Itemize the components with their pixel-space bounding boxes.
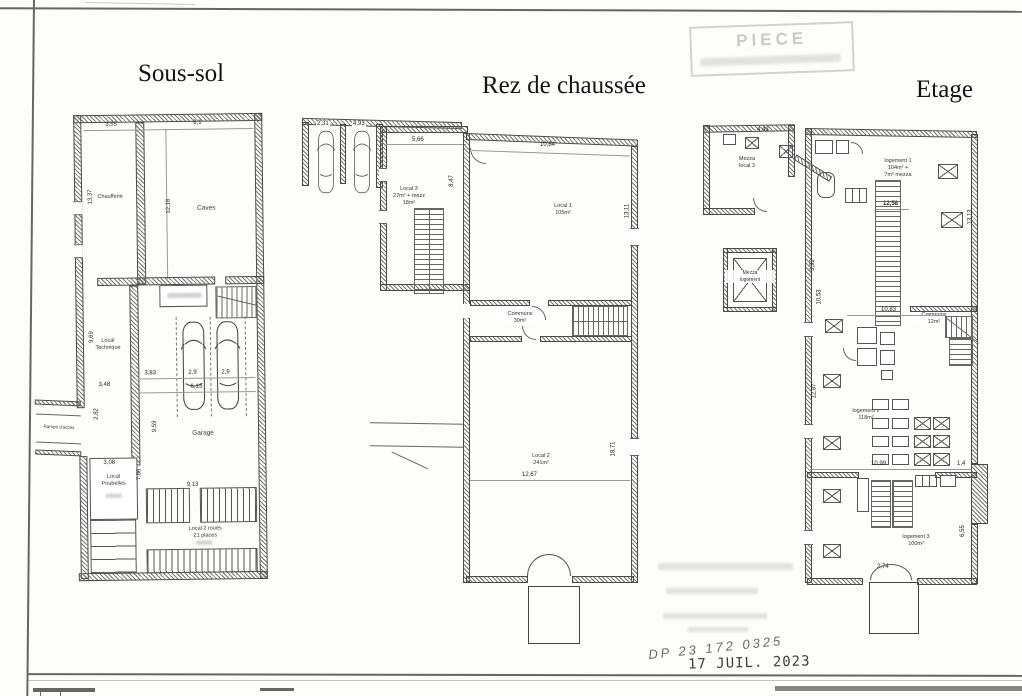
wall bbox=[225, 276, 264, 284]
door-arc bbox=[851, 142, 863, 154]
dim-label: 4,43 bbox=[757, 127, 769, 133]
stairs bbox=[215, 286, 256, 318]
illegible-area-label bbox=[106, 494, 122, 498]
bathtub-icon bbox=[817, 172, 835, 198]
window bbox=[74, 244, 83, 258]
wall bbox=[631, 146, 638, 583]
parking-dashed-line bbox=[245, 316, 247, 416]
wall bbox=[805, 128, 977, 138]
wall bbox=[73, 113, 262, 123]
dim-label: 3,83 bbox=[144, 370, 156, 376]
skylight-icon bbox=[914, 453, 931, 466]
wall bbox=[302, 122, 309, 186]
dimension-line bbox=[83, 128, 253, 131]
dim-label: 6,55 bbox=[960, 525, 966, 537]
dimension-line bbox=[847, 315, 945, 316]
room-label-logement3: logement 3 100m² bbox=[891, 534, 941, 548]
window bbox=[804, 530, 813, 545]
plan-sous-sol: 3,55 8,1 13,37 12,16 Chaufferie Caves Lo… bbox=[65, 104, 286, 589]
fixture bbox=[880, 350, 895, 365]
dim-label: 9,69 bbox=[89, 331, 95, 343]
skylight-icon bbox=[823, 544, 841, 558]
skylight-icon bbox=[914, 435, 931, 448]
stairs bbox=[875, 180, 901, 326]
wall bbox=[380, 126, 468, 133]
page-border-top-shadow bbox=[85, 2, 195, 5]
titleblock-tick bbox=[40, 688, 41, 696]
piece-stamp-text: PIECE bbox=[691, 27, 852, 53]
fixture bbox=[880, 332, 895, 345]
dim-label: 3,55 bbox=[105, 122, 117, 128]
door-arc bbox=[549, 554, 571, 576]
site-line bbox=[370, 445, 463, 448]
piece-stamp-blur-line bbox=[700, 54, 840, 67]
skylight-icon bbox=[914, 417, 931, 430]
room-label-caves: Caves bbox=[181, 204, 231, 213]
fixture bbox=[836, 140, 849, 154]
balcony bbox=[869, 582, 919, 634]
wall bbox=[971, 524, 978, 584]
fixture bbox=[815, 140, 833, 154]
dim-label: 1,4 bbox=[957, 461, 965, 467]
dim-label: 8,47 bbox=[449, 175, 455, 187]
illegible-area-label bbox=[196, 541, 212, 545]
car-icon bbox=[314, 129, 338, 195]
car-icon bbox=[214, 316, 242, 414]
skylight-icon bbox=[825, 319, 843, 333]
dim-label: 8,1 bbox=[193, 120, 201, 126]
wall bbox=[466, 576, 528, 583]
room-label-mezza-logement: Mezza logement bbox=[725, 270, 775, 283]
door-arc bbox=[532, 306, 546, 320]
fixture bbox=[881, 370, 893, 380]
dim-label: 2,31 bbox=[316, 121, 330, 127]
dim-label: 2,9 bbox=[221, 369, 229, 375]
door-arc bbox=[891, 564, 912, 580]
skylight-icon bbox=[941, 212, 963, 228]
stairs bbox=[893, 480, 913, 528]
dim-label: 4,93 bbox=[352, 121, 366, 127]
storage-boxes bbox=[90, 519, 137, 574]
window bbox=[630, 438, 639, 456]
dim-label: 13,13 bbox=[968, 209, 974, 224]
dim-label: 7,86 bbox=[136, 469, 142, 481]
titleblock-edge-right bbox=[775, 686, 1022, 691]
plan-title-etage: Etage bbox=[916, 76, 973, 104]
wall bbox=[723, 248, 777, 253]
window bbox=[73, 201, 82, 215]
car-icon bbox=[350, 129, 374, 195]
wall bbox=[540, 336, 632, 342]
skylight-icon bbox=[933, 435, 950, 448]
wall bbox=[971, 134, 978, 464]
dim-label: 13,11 bbox=[624, 204, 630, 219]
kitchen-block bbox=[845, 188, 867, 203]
room-label-garage: Garage bbox=[181, 429, 225, 438]
plan-title-sous-sol: Sous-sol bbox=[138, 60, 224, 88]
roof-window bbox=[872, 399, 889, 410]
wall bbox=[340, 124, 346, 184]
fixture bbox=[915, 475, 937, 487]
skylight-icon bbox=[823, 489, 841, 503]
room-label-rampe: Rampe d'accès bbox=[37, 424, 81, 432]
page-border-top bbox=[0, 7, 1022, 12]
roof-window bbox=[872, 436, 889, 447]
titleblock-edge-mid bbox=[260, 688, 294, 691]
plan-rez-de-chaussee: 2,31 4,93 5,66 8,47 Local 3 27m² + mezz … bbox=[300, 108, 648, 656]
stairs-guide-line bbox=[572, 321, 628, 322]
car-icon bbox=[180, 317, 208, 415]
room-label-local-2-roues: Local 2 roues 21 places bbox=[170, 525, 240, 540]
dim-label: 10,53 bbox=[817, 289, 823, 304]
wall bbox=[703, 124, 795, 133]
parking-dashed-line bbox=[176, 317, 178, 417]
door-arc bbox=[522, 326, 536, 340]
parking-dashed-line bbox=[210, 317, 212, 417]
door-arc bbox=[527, 554, 549, 576]
door-arc bbox=[870, 564, 891, 580]
stairs-center-wall bbox=[892, 480, 894, 528]
wall bbox=[470, 300, 530, 306]
wall bbox=[35, 450, 81, 457]
wall bbox=[703, 208, 755, 215]
illegible-room-label bbox=[167, 293, 201, 298]
room-local-poubelles bbox=[89, 457, 138, 520]
room-label-local2: Local 2 241m² bbox=[516, 453, 566, 467]
wall bbox=[703, 125, 710, 215]
skylight-icon bbox=[938, 164, 958, 179]
site-line bbox=[392, 452, 429, 470]
entrance-porch bbox=[528, 586, 580, 644]
door-arc bbox=[843, 348, 856, 361]
bike-rack bbox=[146, 488, 190, 524]
fixture bbox=[723, 134, 736, 145]
room-label-local1: Local 1 105m² bbox=[538, 203, 588, 217]
wall bbox=[135, 122, 146, 284]
stairs bbox=[949, 338, 973, 366]
dim-label: 3,48 bbox=[98, 382, 110, 388]
plan-etage: Mezza local 3 4,43 Mezza logement logeme… bbox=[695, 112, 1022, 660]
dim-label: 3,08 bbox=[103, 460, 115, 466]
dim-label: 12,67 bbox=[522, 472, 537, 478]
wall bbox=[35, 400, 81, 407]
room-label-local-poubelles: Local Poubelles bbox=[92, 473, 136, 488]
skylight-icon bbox=[933, 417, 950, 430]
dim-label: 6,13 bbox=[190, 384, 202, 390]
page-border-bottom-2 bbox=[28, 680, 1022, 681]
titleblock-edge-left bbox=[33, 688, 95, 692]
page-border-left bbox=[26, 0, 34, 696]
bike-rack bbox=[146, 548, 257, 573]
wall bbox=[463, 133, 470, 583]
dimension-line bbox=[470, 480, 630, 481]
wall bbox=[807, 578, 863, 585]
dim-label: 9,13 bbox=[186, 482, 200, 488]
wall bbox=[129, 285, 140, 465]
fixture bbox=[857, 478, 869, 512]
dim-label: 10,83 bbox=[881, 307, 896, 313]
skylight-icon bbox=[933, 453, 950, 466]
room-label-logement1: logement 1 104m² + 7m² mezza bbox=[875, 158, 921, 179]
window bbox=[379, 210, 387, 224]
wall bbox=[79, 456, 89, 579]
plan-title-rez: Rez de chaussée bbox=[482, 72, 646, 100]
roof-window bbox=[892, 418, 909, 429]
wall bbox=[807, 472, 859, 478]
door-arc bbox=[470, 148, 486, 164]
wall bbox=[572, 576, 634, 583]
dimension-line bbox=[810, 469, 972, 470]
dim-label: 10,99 bbox=[871, 461, 886, 467]
dim-label: 18,71 bbox=[611, 441, 617, 456]
piece-stamp: PIECE bbox=[689, 21, 855, 77]
ramp-line bbox=[36, 442, 81, 445]
window bbox=[630, 228, 639, 246]
roof-window bbox=[892, 399, 909, 410]
dimension-line bbox=[472, 150, 630, 157]
wall bbox=[73, 115, 85, 408]
dim-label: 12,16 bbox=[166, 199, 172, 214]
page-border-bottom bbox=[28, 673, 1022, 677]
stairs bbox=[871, 480, 891, 528]
dim-label: 2,9 bbox=[188, 370, 196, 376]
room-label-chaufferie: Chaufferie bbox=[88, 194, 132, 202]
skylight-icon bbox=[779, 145, 793, 158]
dim-label: 12,87 bbox=[812, 383, 818, 398]
wall bbox=[470, 336, 522, 342]
skylight-icon bbox=[823, 374, 841, 388]
fixture bbox=[857, 348, 877, 366]
skylight-icon bbox=[823, 436, 841, 450]
skylight-icon bbox=[745, 137, 759, 149]
fixture bbox=[857, 327, 877, 344]
room-label-local3: Local 3 27m² + mezz 18m² bbox=[384, 186, 434, 207]
room-label-mezza-local3: Mezza local 3 bbox=[727, 156, 767, 170]
roof-window bbox=[892, 436, 909, 447]
window bbox=[804, 322, 813, 337]
ramp-line bbox=[36, 414, 81, 417]
wall bbox=[380, 126, 387, 291]
wall bbox=[917, 578, 977, 585]
dim-label: 9,59 bbox=[152, 420, 158, 432]
dim-label: 2,82 bbox=[94, 408, 100, 420]
wall bbox=[723, 307, 777, 312]
dim-label: 10,64 bbox=[540, 142, 555, 148]
roof-window bbox=[892, 454, 909, 465]
scanned-floor-plan-page: Sous-sol Rez de chaussée Etage PIECE DP … bbox=[0, 0, 1022, 696]
bike-rack bbox=[200, 487, 257, 523]
wall bbox=[805, 128, 812, 583]
window bbox=[804, 424, 813, 439]
site-line bbox=[370, 422, 463, 425]
dim-label: 5,66 bbox=[412, 137, 424, 143]
door-arc bbox=[753, 198, 767, 212]
dimension-line bbox=[386, 144, 466, 145]
roof-window bbox=[872, 418, 889, 429]
window bbox=[379, 168, 387, 182]
fixture bbox=[940, 475, 956, 487]
titleblock-tick bbox=[60, 688, 61, 696]
stairs-guide-line bbox=[429, 208, 430, 294]
door-gap bbox=[463, 304, 470, 318]
dim-label: 3,92 bbox=[810, 259, 816, 271]
